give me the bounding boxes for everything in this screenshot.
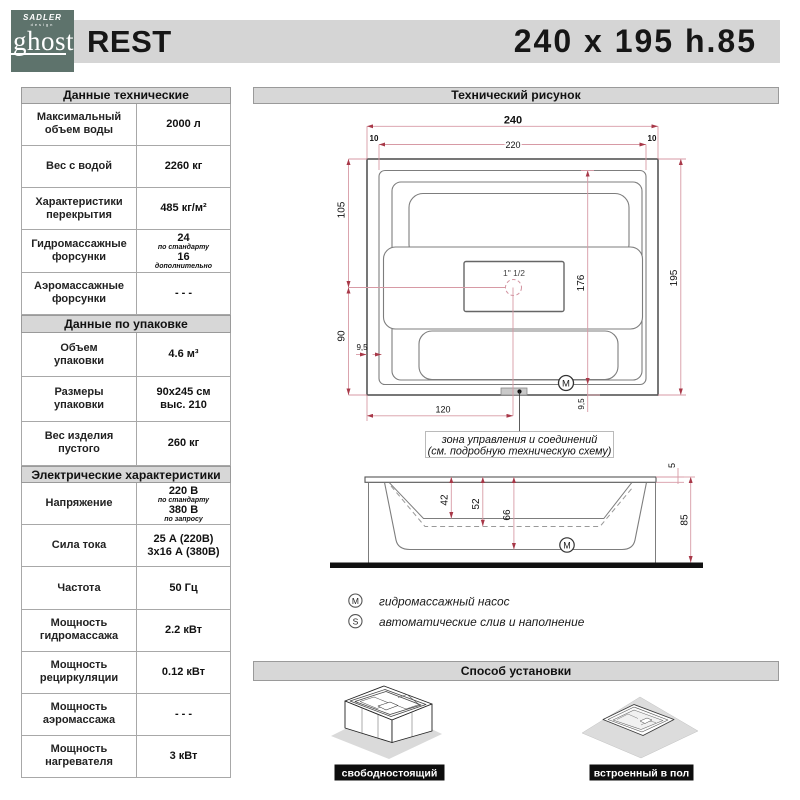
svg-text:гидромассажный насос: гидромассажный насос bbox=[379, 595, 510, 609]
svg-text:S: S bbox=[353, 617, 359, 627]
svg-text:105: 105 bbox=[337, 201, 348, 218]
svg-text:120: 120 bbox=[435, 405, 450, 415]
svg-text:90: 90 bbox=[337, 330, 348, 342]
svg-text:240: 240 bbox=[504, 115, 522, 127]
svg-text:зона управления и соединений: зона управления и соединений bbox=[441, 434, 597, 446]
svg-text:M: M bbox=[352, 596, 359, 606]
svg-text:10: 10 bbox=[648, 134, 657, 143]
svg-text:5: 5 bbox=[667, 463, 677, 468]
svg-text:66: 66 bbox=[502, 509, 513, 521]
svg-text:195: 195 bbox=[669, 269, 680, 286]
svg-text:176: 176 bbox=[576, 274, 587, 291]
svg-text:220: 220 bbox=[505, 140, 520, 150]
svg-text:M: M bbox=[562, 379, 570, 390]
svg-text:42: 42 bbox=[439, 494, 450, 506]
svg-text:M: M bbox=[563, 541, 571, 551]
svg-text:9,5: 9,5 bbox=[577, 398, 586, 410]
svg-text:свободностоящий: свободностоящий bbox=[342, 768, 438, 780]
svg-text:встроенный в пол: встроенный в пол bbox=[594, 768, 689, 780]
svg-text:9,5: 9,5 bbox=[356, 343, 368, 352]
svg-text:1" 1/2: 1" 1/2 bbox=[503, 268, 525, 278]
svg-text:85: 85 bbox=[680, 514, 691, 526]
svg-text:(см. подробную техническую схе: (см. подробную техническую схему) bbox=[428, 446, 612, 458]
svg-text:автоматические слив и наполнен: автоматические слив и наполнение bbox=[379, 615, 585, 629]
svg-text:10: 10 bbox=[370, 134, 379, 143]
svg-text:52: 52 bbox=[471, 498, 482, 510]
